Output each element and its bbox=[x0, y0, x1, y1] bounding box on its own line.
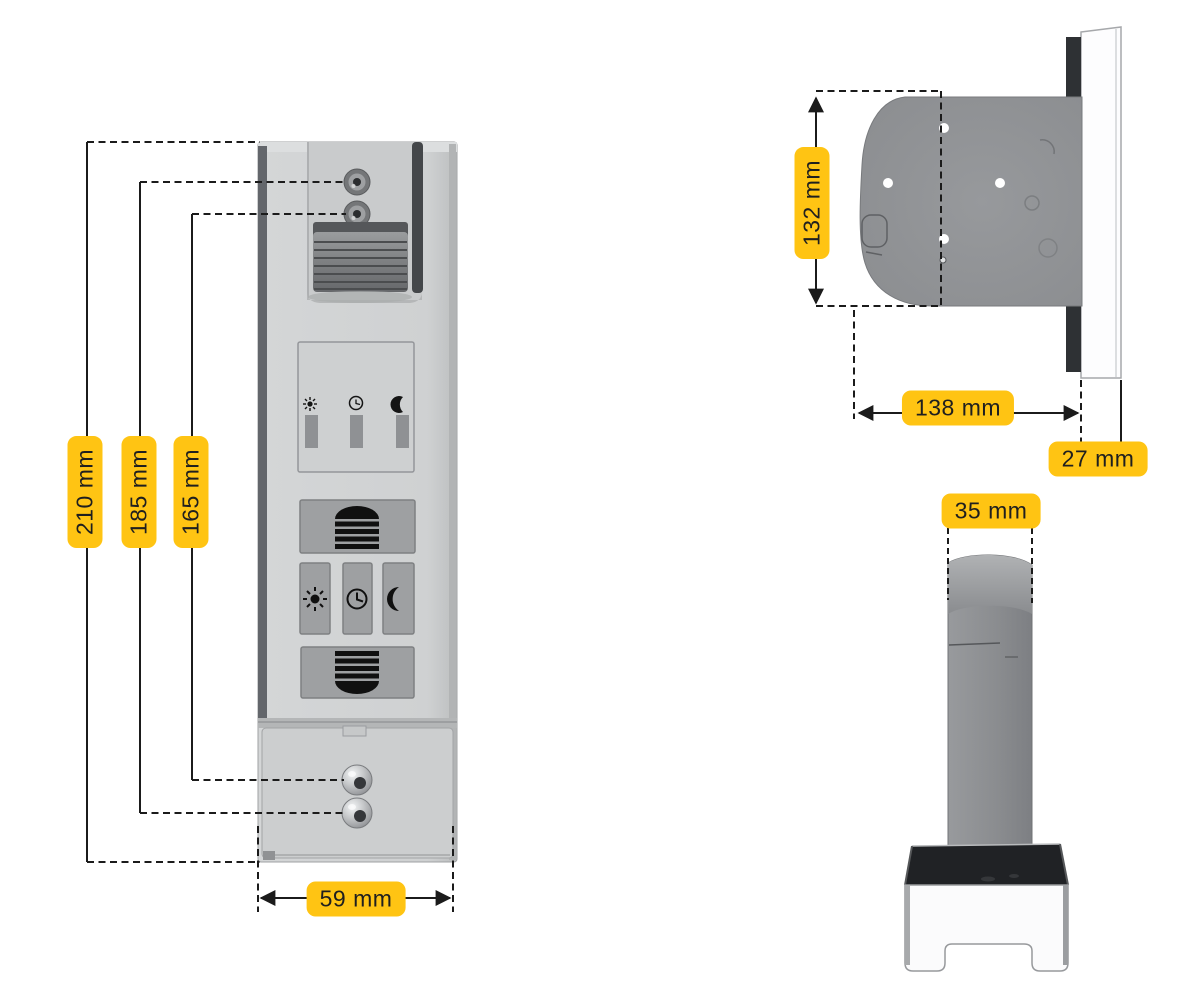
top-view bbox=[860, 27, 1121, 378]
front-view bbox=[258, 142, 457, 862]
moon-button bbox=[383, 563, 414, 634]
shutter-up-button bbox=[300, 500, 415, 553]
dimension-label-132mm: 132 mm bbox=[795, 147, 830, 259]
clip-tab bbox=[343, 726, 366, 736]
dimension-label-27mm: 27 mm bbox=[1049, 442, 1148, 477]
mounting-screw-top-1 bbox=[344, 169, 370, 195]
base-left-side bbox=[905, 885, 910, 965]
dimension-label-59mm: 59 mm bbox=[307, 882, 406, 917]
sun-button bbox=[300, 563, 330, 634]
indicator-bar-moon bbox=[396, 415, 409, 448]
base-right-side bbox=[1063, 885, 1068, 965]
clock-button bbox=[343, 563, 372, 634]
body-left-edge bbox=[258, 146, 267, 722]
display-panel bbox=[298, 342, 414, 472]
dimension-label-165mm: 165 mm bbox=[174, 436, 209, 548]
lower-mounting-section bbox=[258, 718, 457, 860]
indicator-bar-clock bbox=[350, 415, 363, 448]
device-body-top bbox=[860, 97, 1082, 306]
base-top-slot bbox=[1009, 874, 1019, 878]
base-top-slot bbox=[981, 877, 995, 882]
belt-slot-groove bbox=[412, 142, 423, 293]
dimension-diagram: 210 mm 185 mm 165 mm 59 mm 132 mm 138 mm… bbox=[0, 0, 1200, 1000]
side-view bbox=[905, 555, 1068, 971]
dimension-label-210mm: 210 mm bbox=[68, 436, 103, 548]
mounting-bolt-1 bbox=[342, 765, 372, 795]
base-front-face bbox=[905, 885, 1068, 971]
mounting-bolt-2 bbox=[342, 798, 372, 828]
button-cluster bbox=[300, 500, 415, 698]
mounting-base bbox=[905, 844, 1068, 971]
dimension-label-35mm: 35 mm bbox=[942, 494, 1041, 529]
dimension-label-185mm: 185 mm bbox=[122, 436, 157, 548]
sun-icon bbox=[303, 397, 317, 411]
indicator-bar-sun bbox=[305, 415, 318, 448]
bottom-left-notch bbox=[263, 851, 275, 860]
belt-roller bbox=[308, 222, 412, 303]
belt-channel bbox=[307, 142, 423, 303]
dimension-label-138mm: 138 mm bbox=[902, 391, 1014, 426]
side-top-curve bbox=[948, 555, 1032, 614]
shutter-down-button bbox=[301, 647, 414, 698]
